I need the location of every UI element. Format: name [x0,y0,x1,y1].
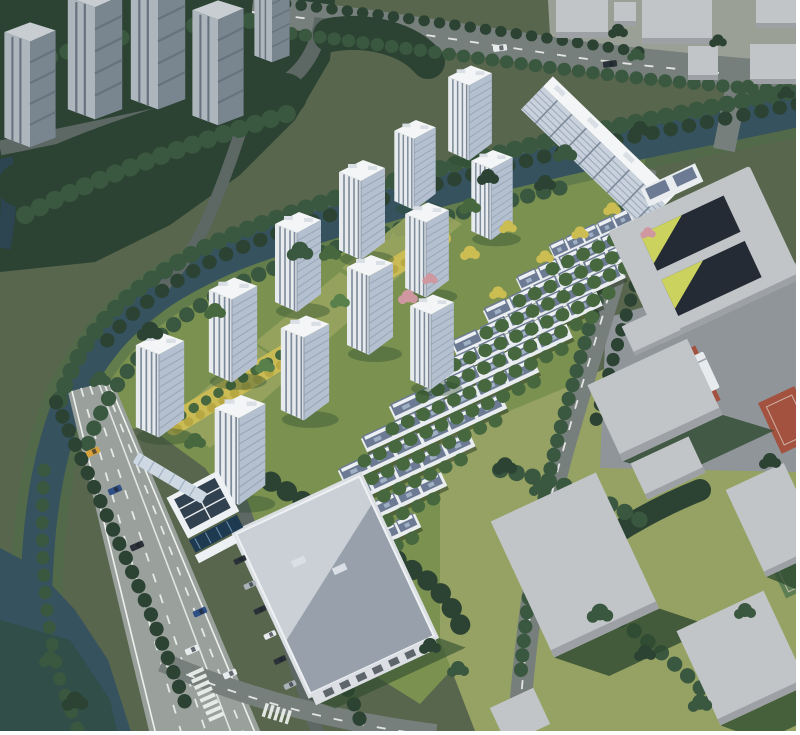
aerial-render [0,0,800,735]
context-tower [4,22,55,147]
context-tower [254,0,289,62]
render-canvas [0,0,800,735]
context-tower [68,0,122,119]
context-tower [131,0,185,109]
context-tower [192,0,243,125]
frame-margin-right [796,0,800,735]
frame-margin-bottom [0,731,800,735]
